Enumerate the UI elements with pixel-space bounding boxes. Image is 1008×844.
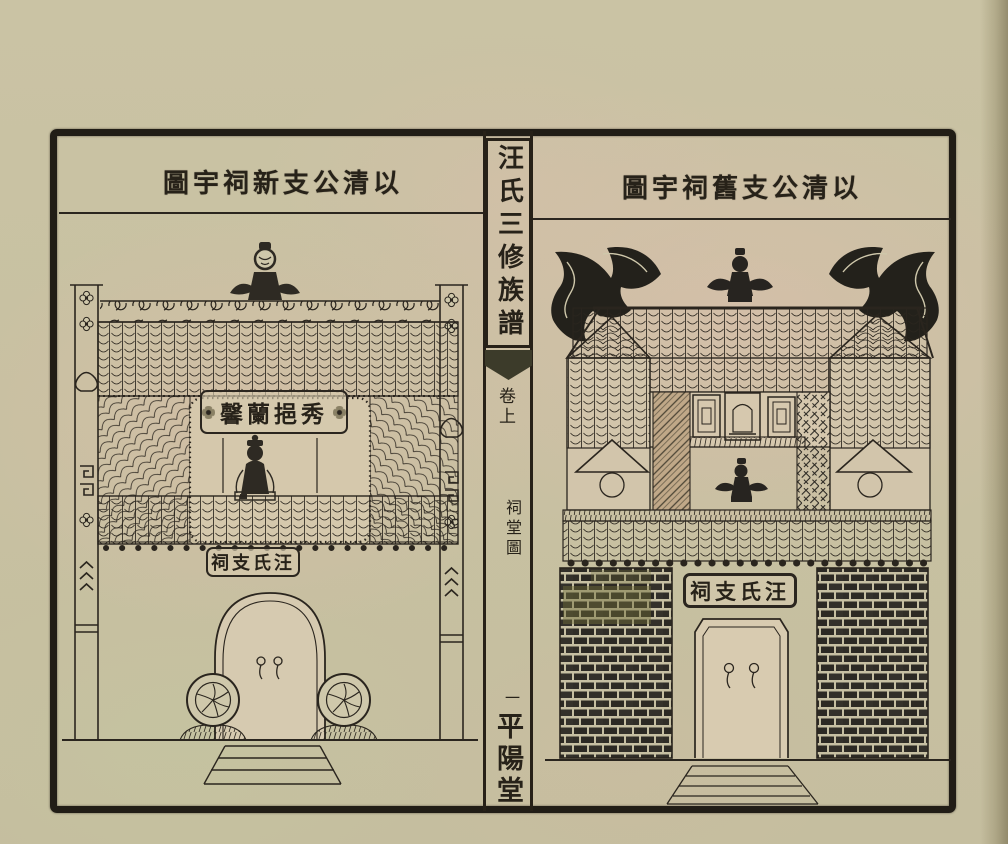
entrance-door: [695, 619, 788, 758]
scan-edge-shadow: [980, 0, 1008, 844]
spine-title: 汪氏三修族譜: [496, 144, 522, 342]
left-gate-plaque-text: 祠支氏汪: [211, 549, 295, 575]
genealogy-book-spread: 圖宇祠新支公清以 圖宇祠舊支公清以 汪氏三修族譜 卷上 祠堂圖 一 平陽堂: [0, 0, 1008, 844]
pier-weave-left: [653, 392, 690, 510]
column-rosette: [80, 291, 93, 304]
entrance-steps: [667, 766, 818, 804]
lower-roof-tiles: [98, 496, 458, 548]
entrance-steps: [204, 746, 341, 784]
right-gate-plaque: 祠支氏汪: [683, 573, 797, 608]
brick-wall-left: [560, 568, 672, 758]
altar-finial: [715, 458, 768, 502]
left-caption: 圖宇祠新支公清以: [163, 163, 403, 200]
eave-tiles: [563, 510, 931, 563]
right-caption: 圖宇祠舊支公清以: [622, 168, 862, 205]
side-tower-left: [567, 317, 650, 510]
inner-plaque: 馨蘭挹秀: [200, 390, 348, 434]
ridge-finial: [707, 248, 773, 302]
left-building-drawing: [58, 228, 482, 808]
page-number: 一: [501, 690, 522, 705]
hall-mark: 平陽堂: [489, 712, 528, 808]
roof-finial: [230, 242, 300, 300]
ridge-scroll: [98, 301, 458, 322]
plaque-rosette-icon: [333, 406, 346, 419]
right-caption-rule: [533, 218, 951, 220]
plaque-rosette-icon: [202, 406, 215, 419]
right-building-drawing: [543, 240, 955, 818]
column-rosette: [80, 317, 93, 330]
inner-plaque-text: 馨蘭挹秀: [220, 395, 328, 429]
section-label: 祠堂圖: [499, 499, 523, 559]
shrine-shelf: [681, 437, 805, 447]
column-rosette: [445, 293, 458, 306]
column-rosette: [80, 513, 93, 526]
volume-label: 卷上: [493, 387, 518, 427]
left-caption-rule: [59, 212, 483, 214]
brick-wall-right: [817, 568, 928, 758]
right-gate-plaque-text: 祠支氏汪: [690, 576, 790, 606]
spine-title-box: 汪氏三修族譜: [485, 138, 532, 348]
upper-roof-tiles: [98, 322, 458, 396]
pier-fret-right: [797, 392, 830, 510]
left-gate-plaque: 祠支氏汪: [206, 547, 300, 577]
